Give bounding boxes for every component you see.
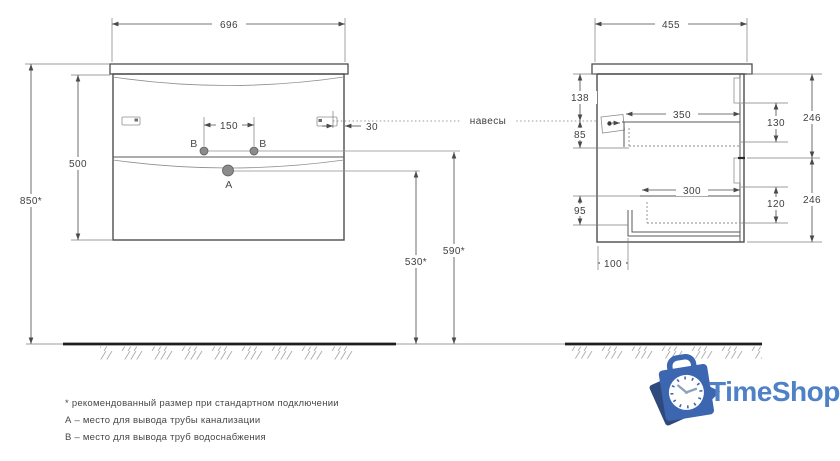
dim-hanger-to-drawer: 85 [574,130,586,141]
dim-handle-offset: 30 [366,122,378,133]
brand-logo: TimeShop [649,352,840,426]
footnote-recommended: * рекомендованный размер при стандартном… [65,398,339,409]
supply-point-left [200,147,208,155]
dim-drawer-top-depth: 350 [673,110,691,121]
label-point-b-left: В [190,138,197,150]
drain-point [223,165,234,176]
technical-drawing: 696 150 В В А 30 [0,0,840,461]
dim-drawer-bottom-height: 120 [767,199,785,210]
hangers-label: навесы [470,116,506,127]
label-point-a: А [225,179,232,191]
side-carcass [597,74,744,242]
front-basin-curve [113,77,344,86]
side-view: 455 350 138 85 [563,17,830,270]
footnote-point-b: В – место для вывода труб водоснабжения [65,432,266,443]
dim-drawer-top-height: 130 [767,118,785,129]
dim-hanger-from-top: 138 [571,93,589,104]
label-point-b-right: В [259,138,266,150]
front-handle-right [317,117,337,126]
dim-bottom-clearance: 95 [574,206,586,217]
dim-back-recess: 100 [604,259,622,270]
dim-supply-spacing: 150 [220,121,238,132]
bottom-drawer-section: 300 [628,184,740,236]
front-handle-left [122,117,140,125]
floor-hatch-right [566,347,762,359]
floor-hatch-left [100,347,356,360]
side-countertop [592,64,752,74]
dim-carcass-height: 500 [69,159,87,170]
dim-depth: 455 [662,20,680,31]
supply-point-right [250,147,258,155]
wall-hanger [601,115,625,134]
dim-supply-height: 590* [443,246,465,257]
footnotes: * рекомендованный размер при стандартном… [65,398,339,443]
brand-name: TimeShop [709,376,840,407]
front-view: 696 150 В В А 30 [12,17,474,344]
dim-facade-top-height: 246 [803,113,821,124]
dim-drain-height: 530* [405,257,427,268]
top-drawer-section: 350 [573,108,740,148]
floor [26,344,762,360]
spec-sheet: 696 150 В В А 30 [0,0,840,461]
dim-total-height: 850* [20,196,42,207]
front-countertop [110,64,348,74]
dim-facade-bottom-height: 246 [803,195,821,206]
dim-drawer-bottom-depth: 300 [683,186,701,197]
dim-front-width: 696 [220,20,238,31]
footnote-point-a: А – место для вывода трубы канализации [65,415,260,426]
